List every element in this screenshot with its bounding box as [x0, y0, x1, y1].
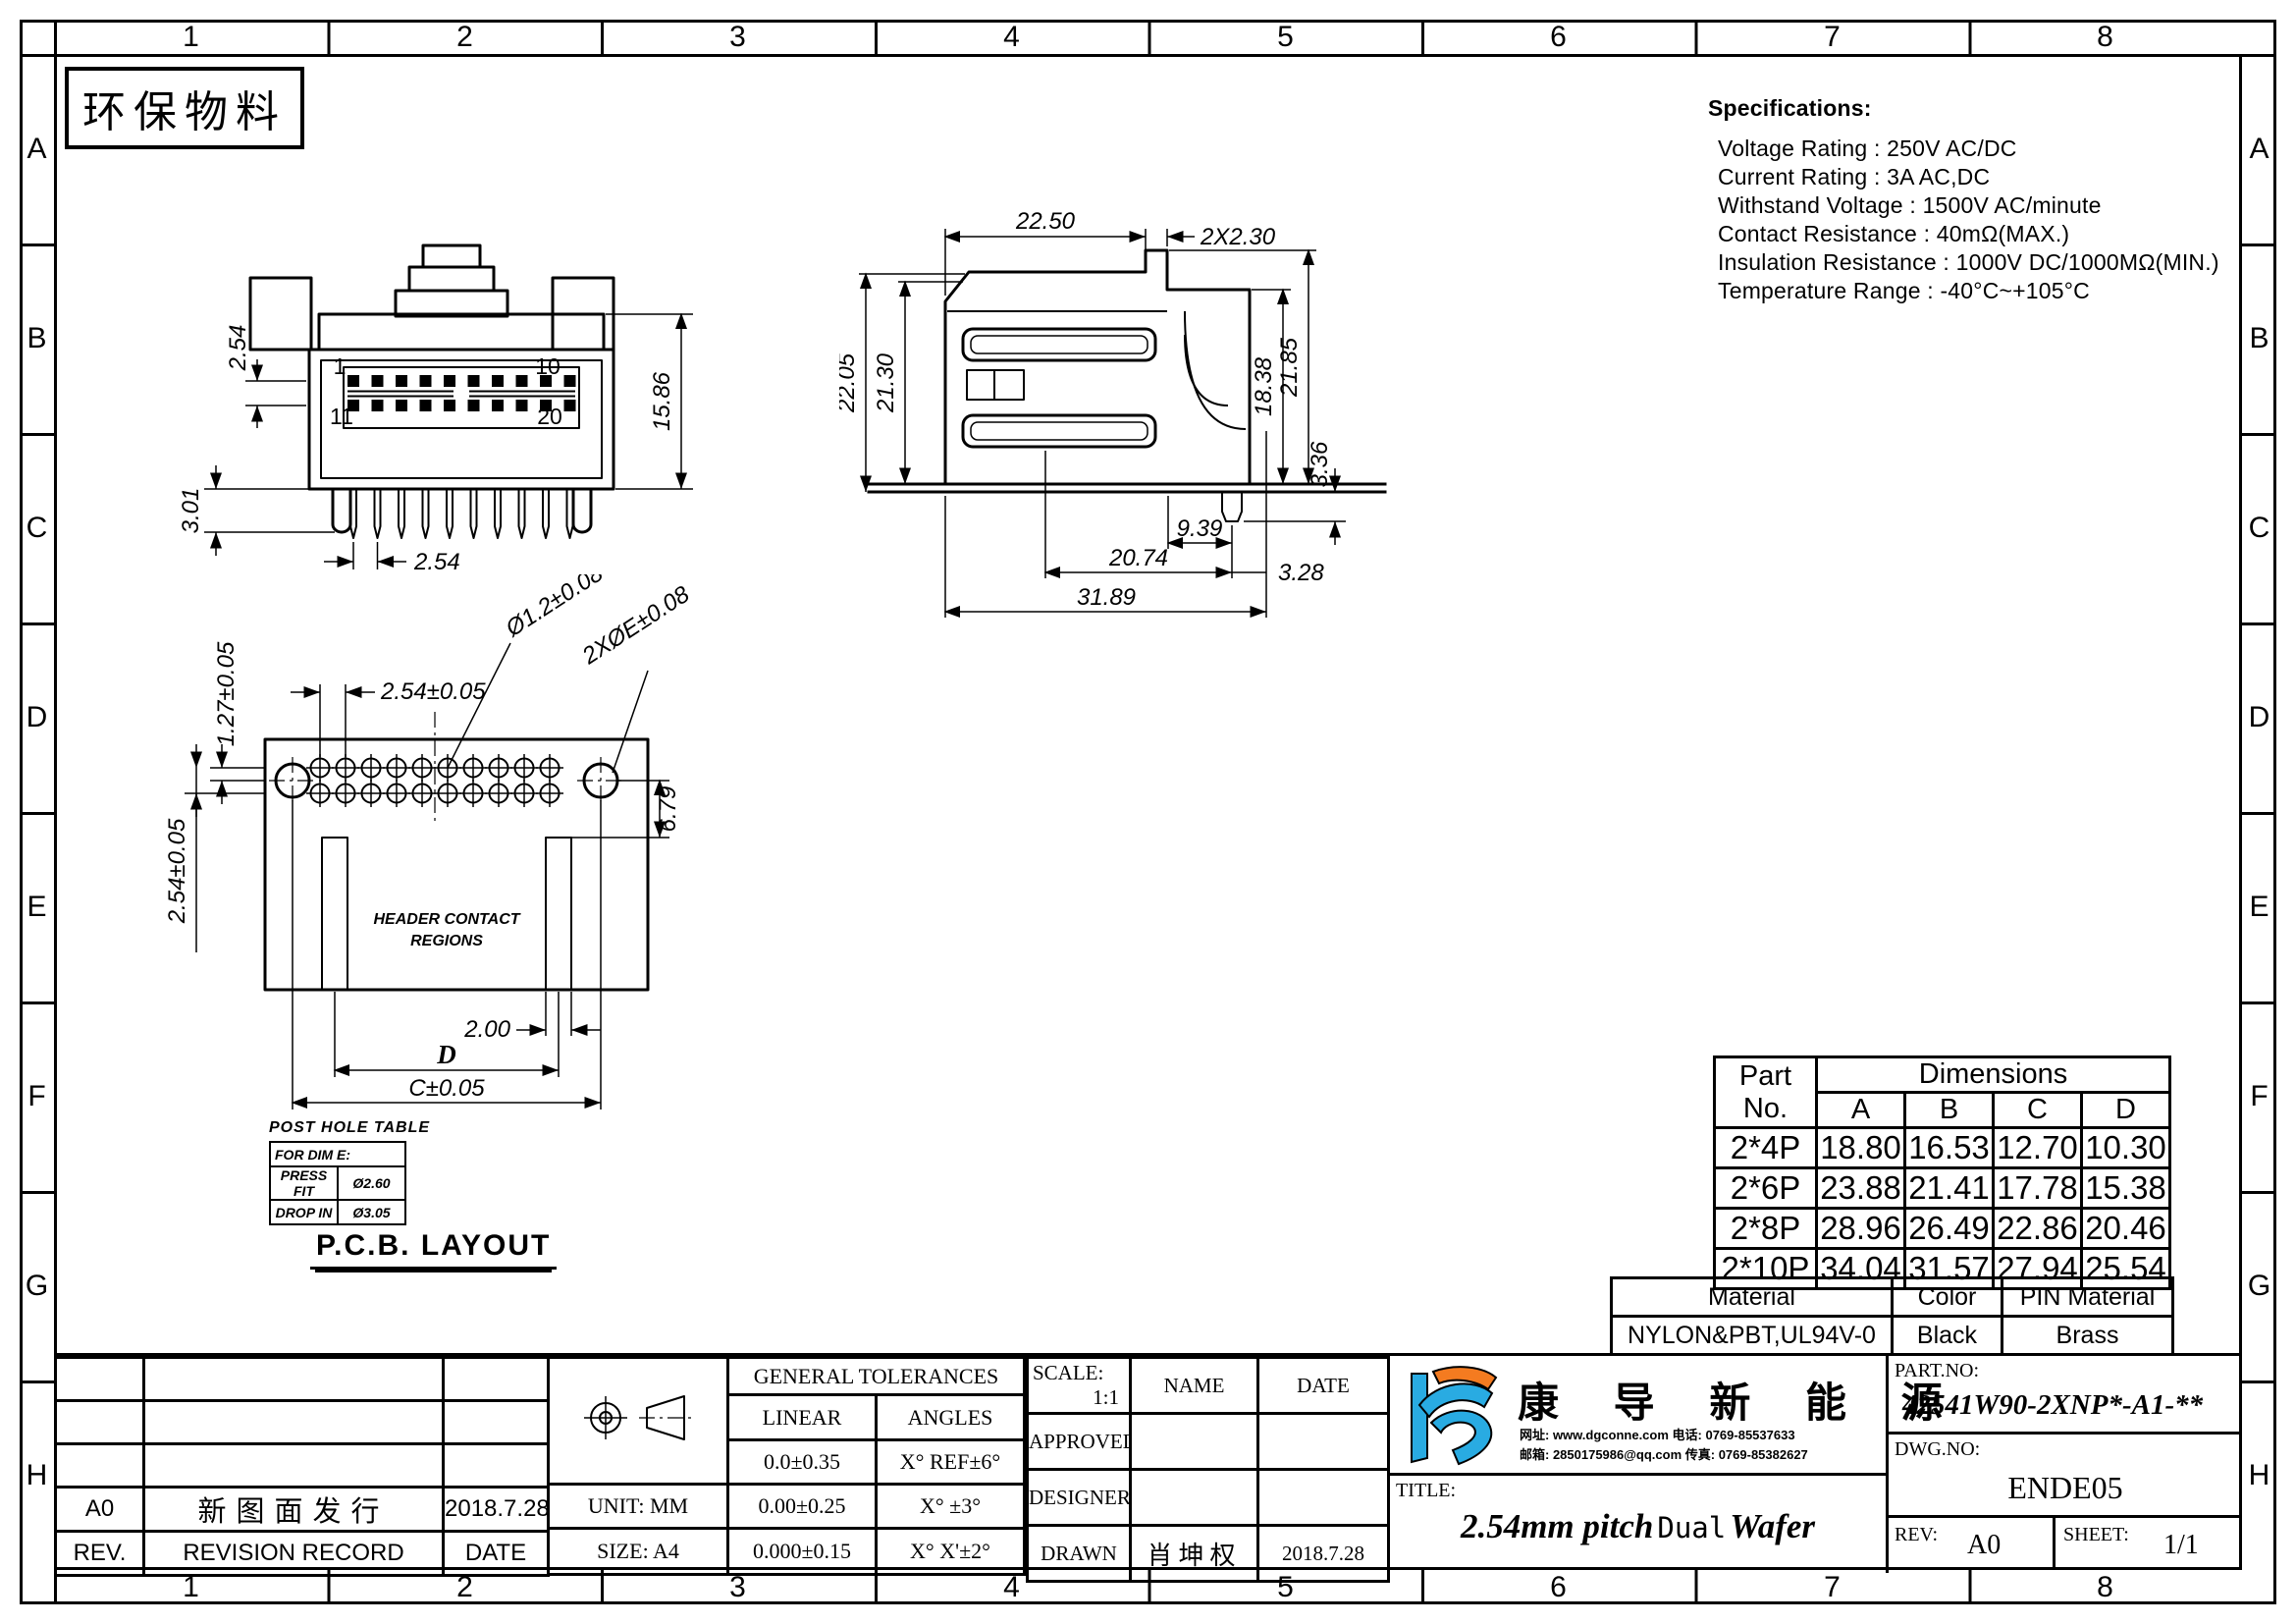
title-part2: Dual [1657, 1511, 1726, 1544]
grid-col-label: 2 [328, 20, 602, 54]
sheet-value: 1/1 [2163, 1530, 2199, 1561]
cell: 2*4P [1715, 1128, 1817, 1168]
empty-cell [56, 1358, 144, 1401]
title-part3: Wafer [1730, 1507, 1815, 1545]
revision-table: A0 新图面发行 2018.7.28 REV. REVISION RECORD … [54, 1356, 550, 1577]
dim-pin-width: 2X2.30 [1200, 224, 1276, 250]
empty-cell [144, 1401, 444, 1444]
dwg-no-label: DWG.NO: [1895, 1438, 1980, 1461]
cell: 10.30 [2082, 1128, 2170, 1168]
color-value: Black [1893, 1317, 2002, 1355]
dim-b1: 9.39 [1177, 515, 1223, 542]
cell: 28.96 [1817, 1209, 1905, 1249]
pin-legs [333, 489, 591, 538]
dim-pitch: 2.54 [413, 549, 460, 575]
material-table: Material Color PIN Material NYLON&PBT,UL… [1610, 1276, 2174, 1356]
size-cell: SIZE: A4 [549, 1529, 728, 1575]
side-view-drawing: 22.50 2X2.30 22.05 21.30 18.38 21.85 3.3… [839, 142, 1418, 653]
designer-row: DESIGNER [1028, 1470, 1389, 1526]
table-row: 2*8P28.9626.4922.8620.46 [1715, 1209, 2170, 1249]
part-no-label: PART.NO: [1895, 1360, 1979, 1382]
dim-d: D [436, 1040, 456, 1069]
header-contact-region-label2: REGIONS [410, 933, 483, 949]
cell: 18.80 [1817, 1128, 1905, 1168]
part-no-value: 42541W90-2XNP*-A1-** [1902, 1389, 2203, 1422]
pin-20-label: 20 [537, 404, 562, 429]
dim-h4: 21.85 [1276, 337, 1303, 398]
company-title-block: 康 导 新 能 源 网址: www.dgconne.com 电话: 0769-8… [1387, 1356, 1889, 1573]
engineering-drawing-sheet: { "sheet": { "eco_label": "环保物料" }, "bor… [0, 0, 2296, 1624]
post-hole-table: FOR DIM E: PRESS FIT Ø2.60 DROP IN Ø3.05 [269, 1141, 406, 1225]
revision-record: 新图面发行 [144, 1488, 444, 1532]
grid-row-label: E [2242, 812, 2276, 1001]
spec-line: Voltage Rating : 250V AC/DC [1708, 135, 2258, 163]
cell: 16.53 [1905, 1128, 1994, 1168]
grid-row-label: C [2242, 433, 2276, 623]
sheet-label: SHEET: [2063, 1524, 2129, 1546]
tolerance-row: SIZE: A4 0.000±0.15 X° X'±2° [549, 1529, 1025, 1575]
color-header: Color [1893, 1278, 2002, 1317]
company-logo-icon [1398, 1364, 1506, 1468]
approval-table: SCALE: 1:1 NAME DATE APPROVED DESIGNER D… [1026, 1356, 1390, 1583]
front-dimensions: 2.54 15.86 3.01 2.54 [178, 314, 693, 575]
post-hole-cell: Ø2.60 [338, 1166, 405, 1200]
revision-date: 2018.7.28 [444, 1488, 549, 1532]
empty-cell [444, 1401, 549, 1444]
grid-row-label: F [20, 1001, 54, 1191]
cell: 21.41 [1905, 1168, 1994, 1209]
pin-11-label: 11 [330, 404, 353, 429]
front-connector-body [250, 245, 614, 538]
dim-pin-length: 3.01 [178, 488, 204, 534]
spec-line: Contact Resistance : 40mΩ(MAX.) [1708, 220, 2258, 248]
grid-col-label: 5 [1148, 20, 1422, 54]
grid-row-label: B [20, 244, 54, 433]
general-tolerances-header: GENERAL TOLERANCES [728, 1358, 1025, 1395]
empty-cell [144, 1358, 444, 1401]
part-header-line1: Part [1716, 1060, 1815, 1093]
name-header: NAME [1131, 1358, 1258, 1414]
dim-h1: 22.05 [839, 352, 860, 413]
revision-header-row: REV. REVISION RECORD DATE [56, 1532, 549, 1576]
dim-h2: 21.30 [873, 352, 899, 413]
dim-h3: 18.38 [1251, 356, 1277, 416]
post-hole-cell: Ø3.05 [338, 1200, 405, 1224]
dim-hole-callout: Ø1.2±0.08 [501, 574, 609, 643]
date-header: DATE [1258, 1358, 1389, 1414]
title-label: TITLE: [1396, 1480, 1456, 1502]
pcb-hole-rows [269, 754, 624, 807]
drawn-label: DRAWN [1028, 1526, 1131, 1582]
cell: 20.46 [2082, 1209, 2170, 1249]
designer-date-cell [1258, 1470, 1389, 1526]
table-row: 2*4P18.8016.5312.7010.30 [1715, 1128, 2170, 1168]
cell: 12.70 [1994, 1128, 2082, 1168]
pin-material-header: PIN Material [2002, 1278, 2173, 1317]
tol-angle-2: X° ±3° [877, 1485, 1025, 1529]
dim-pad: 2.00 [463, 1016, 510, 1043]
material-value: NYLON&PBT,UL94V-0 [1612, 1317, 1893, 1355]
third-angle-projection-icon [574, 1387, 702, 1448]
revision-row: A0 新图面发行 2018.7.28 [56, 1488, 549, 1532]
rev-sheet-section: REV: A0 SHEET: 1/1 [1889, 1518, 2242, 1570]
spec-line: Withstand Voltage : 1500V AC/minute [1708, 191, 2258, 220]
record-header: REVISION RECORD [144, 1532, 444, 1576]
tol-linear-2: 0.00±0.25 [728, 1485, 877, 1529]
dim-pitch: 2.54±0.05 [380, 678, 486, 705]
pcb-layout-title: P.C.B. LAYOUT [310, 1229, 557, 1270]
part-no-header: Part No. [1715, 1057, 1817, 1128]
dim-row-pitch: 2.54 [225, 325, 251, 372]
col-c: C [1994, 1093, 2082, 1128]
empty-cell [444, 1444, 549, 1488]
grid-row-label: G [20, 1191, 54, 1380]
linear-header: LINEAR [728, 1395, 877, 1440]
tolerance-row: UNIT: MM 0.00±0.25 X° ±3° [549, 1485, 1025, 1529]
dim-post-hole-callout: 2XØE±0.08 [577, 581, 695, 671]
material-header-row: Material Color PIN Material [1612, 1278, 2173, 1317]
dim-offset: 6.79 [655, 786, 681, 833]
spec-line: Insulation Resistance : 1000V DC/1000MΩ(… [1708, 248, 2258, 277]
specifications-title: Specifications: [1708, 94, 2258, 123]
table-row: 2*6P23.8821.4117.7815.38 [1715, 1168, 2170, 1209]
rev-label: REV: [1895, 1524, 1938, 1546]
dim-height: 15.86 [649, 371, 675, 431]
title-block: A0 新图面发行 2018.7.28 REV. REVISION RECORD … [54, 1353, 2242, 1570]
pin-material-value: Brass [2002, 1317, 2173, 1355]
dim-b3: 3.28 [1278, 560, 1324, 586]
tol-linear-1: 0.0±0.35 [728, 1440, 877, 1485]
drawing-number-block: PART.NO: 42541W90-2XNP*-A1-** DWG.NO: EN… [1889, 1356, 2242, 1573]
projection-symbol-cell [549, 1358, 728, 1485]
rev-cell: REV: A0 [1889, 1518, 2056, 1570]
col-a: A [1817, 1093, 1905, 1128]
part-header-line2: No. [1716, 1093, 1815, 1125]
grid-col-label: 7 [1695, 1570, 1969, 1604]
angles-header: ANGLES [877, 1395, 1025, 1440]
company-contact-line1: 网址: www.dgconne.com 电话: 0769-85537633 [1520, 1427, 1795, 1443]
cell: 23.88 [1817, 1168, 1905, 1209]
drawn-row: DRAWN 肖坤权 2018.7.28 [1028, 1526, 1389, 1582]
company-contact-line2: 邮箱: 2850175986@qq.com 传真: 0769-85382627 [1520, 1446, 1808, 1463]
dwg-no-section: DWG.NO: ENDE05 [1889, 1435, 2242, 1518]
date-header: DATE [444, 1532, 549, 1576]
approved-date-cell [1258, 1414, 1389, 1470]
material-header: Material [1612, 1278, 1893, 1317]
pcb-layout-drawing: HEADER CONTACT REGIONS 2.54±0.05 1.27±0.… [145, 574, 724, 1124]
dim-b2: 20.74 [1108, 545, 1168, 571]
post-hole-cell: PRESS FIT [270, 1166, 338, 1200]
tol-angle-3: X° X'±2° [877, 1529, 1025, 1575]
designer-name-cell [1131, 1470, 1258, 1526]
scale-cell: SCALE: 1:1 [1028, 1358, 1131, 1414]
grid-row-label: A [20, 54, 54, 244]
dwg-no-value: ENDE05 [1889, 1470, 2242, 1506]
col-b: B [1905, 1093, 1994, 1128]
dim-row: 2.54±0.05 [164, 818, 190, 924]
drawing-title: 2.54mm pitch Dual Wafer [1390, 1507, 1886, 1546]
header-contact-region-label: HEADER CONTACT [373, 911, 520, 928]
tol-linear-3: 0.000±0.15 [728, 1529, 877, 1575]
dim-top-width: 22.50 [1015, 208, 1076, 235]
empty-cell [56, 1444, 144, 1488]
rev-value: A0 [1967, 1530, 2001, 1561]
cell: 2*6P [1715, 1168, 1817, 1209]
specifications-block: Specifications: Voltage Rating : 250V AC… [1708, 94, 2258, 305]
post-hole-header: FOR DIM E: [270, 1142, 405, 1166]
grid-row-label: F [2242, 1001, 2276, 1191]
grid-col-label: 8 [1968, 1570, 2242, 1604]
post-hole-cell: DROP IN [270, 1200, 338, 1224]
material-value-row: NYLON&PBT,UL94V-0 Black Brass [1612, 1317, 2173, 1355]
dim-c: C±0.05 [408, 1075, 485, 1102]
col-d: D [2082, 1093, 2170, 1128]
dim-half-pitch: 1.27±0.05 [213, 641, 240, 746]
title-part1: 2.54mm pitch [1461, 1507, 1653, 1545]
sheet-cell: SHEET: 1/1 [2056, 1518, 2242, 1570]
scale-label: SCALE: [1033, 1361, 1125, 1385]
dim-peg: 3.36 [1307, 441, 1333, 487]
grid-row-label: C [20, 433, 54, 623]
pcb-dimensions: 2.54±0.05 1.27±0.05 2.54±0.05 Ø1.2±0.08 … [164, 574, 695, 1110]
grid-col-label: 6 [1421, 20, 1695, 54]
grid-row-label: D [20, 623, 54, 812]
cell: 15.38 [2082, 1168, 2170, 1209]
title-section: TITLE: 2.54mm pitch Dual Wafer [1390, 1476, 1886, 1570]
cell: 26.49 [1905, 1209, 1994, 1249]
designer-label: DESIGNER [1028, 1470, 1131, 1526]
dim-total: 31.89 [1077, 584, 1136, 611]
pcb-board: HEADER CONTACT REGIONS [265, 712, 648, 990]
cell: 2*8P [1715, 1209, 1817, 1249]
grid-row-label: D [2242, 623, 2276, 812]
cell: 17.78 [1994, 1168, 2082, 1209]
grid-row-label: H [20, 1380, 54, 1570]
grid-col-label: 1 [54, 20, 328, 54]
front-view-drawing: 1 10 11 20 2.54 15.86 3.01 2.54 [147, 165, 717, 626]
company-header: 康 导 新 能 源 网址: www.dgconne.com 电话: 0769-8… [1390, 1356, 1886, 1476]
grid-row-label: H [2242, 1380, 2276, 1570]
unit-cell: UNIT: MM [549, 1485, 728, 1529]
drawn-name: 肖坤权 [1131, 1526, 1258, 1582]
post-hole-table-title: POST HOLE TABLE [269, 1119, 430, 1137]
rev-header: REV. [56, 1532, 144, 1576]
side-dimensions: 22.50 2X2.30 22.05 21.30 18.38 21.85 3.3… [839, 208, 1346, 618]
approved-row: APPROVED [1028, 1414, 1389, 1470]
grid-col-label: 3 [601, 20, 875, 54]
tolerance-table: GENERAL TOLERANCES LINEAR ANGLES 0.0±0.3… [547, 1356, 1026, 1576]
grid-row-label: G [2242, 1191, 2276, 1380]
cell: 22.86 [1994, 1209, 2082, 1249]
grid-col-label: 7 [1695, 20, 1969, 54]
part-dimensions-table: Part No. Dimensions A B C D 2*4P18.8016.… [1713, 1056, 2171, 1290]
tol-angle-1: X° REF±6° [877, 1440, 1025, 1485]
pin-10-label: 10 [535, 353, 561, 379]
drawn-date: 2018.7.28 [1258, 1526, 1389, 1582]
eco-material-label: 环保物料 [65, 67, 304, 149]
spec-line: Current Rating : 3A AC,DC [1708, 163, 2258, 191]
empty-cell [56, 1401, 144, 1444]
spec-line: Temperature Range : -40°C~+105°C [1708, 277, 2258, 305]
grid-col-label: 4 [875, 20, 1148, 54]
grid-col-label: 6 [1421, 1570, 1695, 1604]
pin-1-label: 1 [334, 353, 347, 379]
grid-col-label: 8 [1968, 20, 2242, 54]
empty-cell [444, 1358, 549, 1401]
grid-row-label: E [20, 812, 54, 1001]
approved-label: APPROVED [1028, 1414, 1131, 1470]
empty-cell [144, 1444, 444, 1488]
scale-value: 1:1 [1033, 1385, 1125, 1410]
dimensions-header: Dimensions [1817, 1057, 2170, 1093]
approved-name-cell [1131, 1414, 1258, 1470]
revision-rev: A0 [56, 1488, 144, 1532]
part-no-section: PART.NO: 42541W90-2XNP*-A1-** [1889, 1356, 2242, 1435]
